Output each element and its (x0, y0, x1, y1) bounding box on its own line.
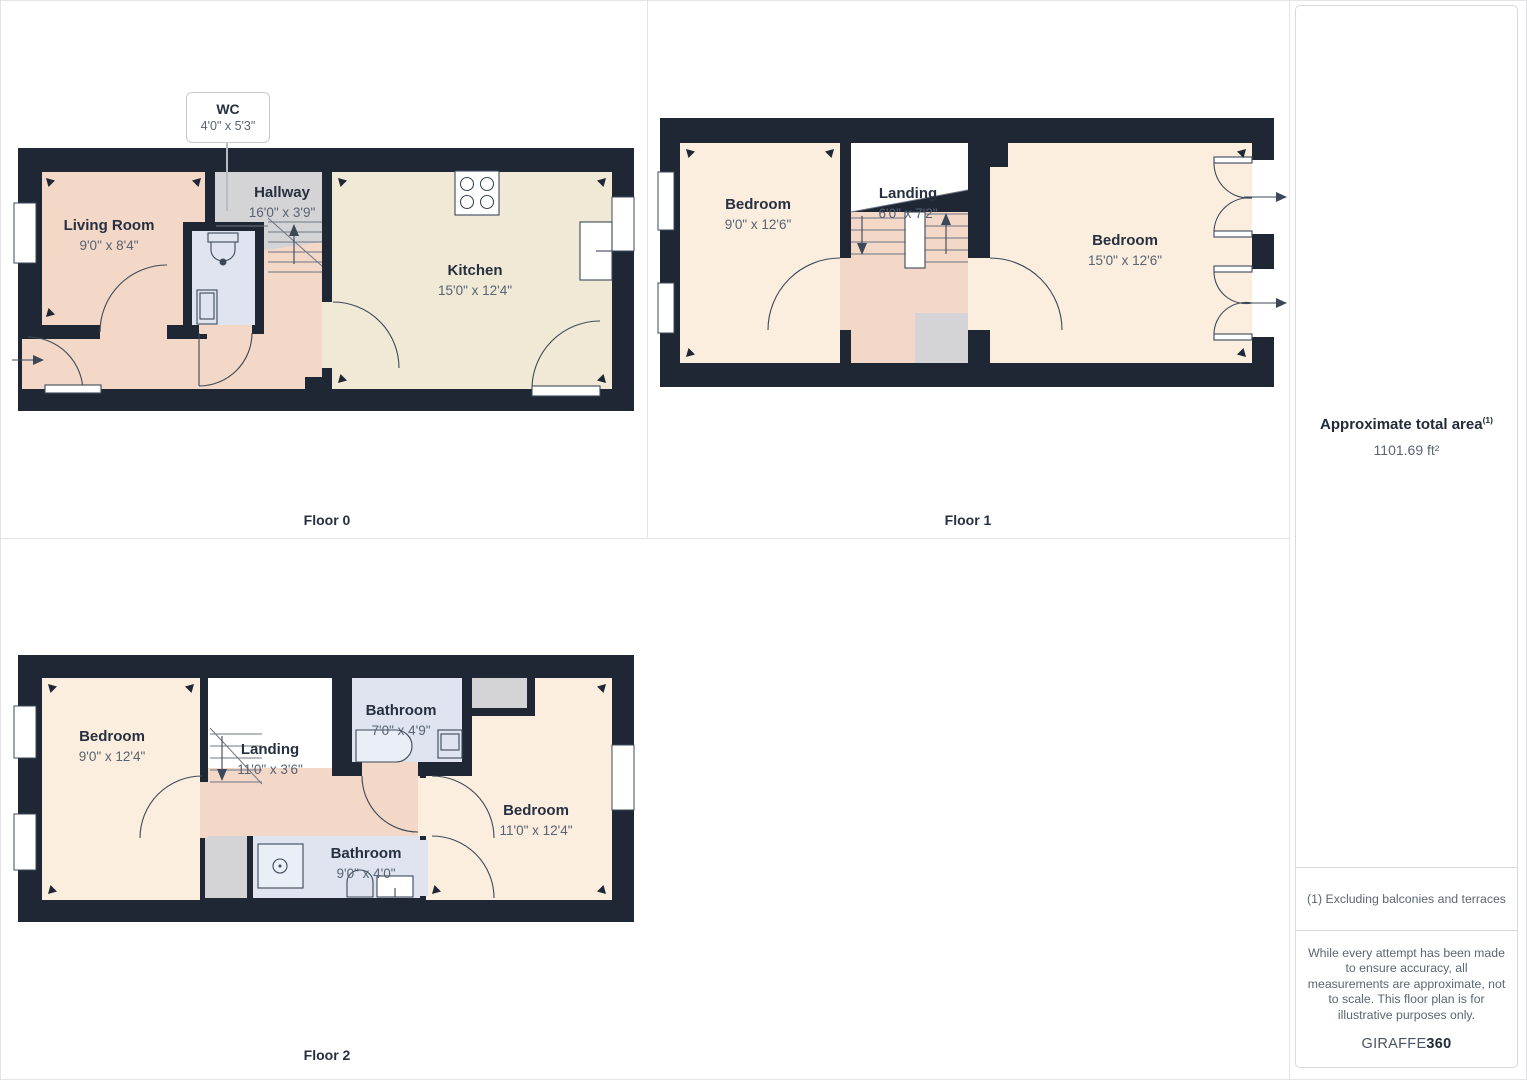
floor1-closet (915, 313, 968, 363)
room-dims: 4'0" x 5'3" (201, 118, 256, 134)
living-room-window (14, 203, 36, 263)
room-label-hallway: Hallway 16'0" x 3'9" (249, 183, 316, 223)
total-area-value: 1101.69 ft² (1374, 442, 1440, 458)
room-dims: 9'0" x 12'6" (725, 215, 792, 235)
stove-icon (455, 171, 499, 215)
room-dims: 15'0" x 12'4" (438, 281, 512, 301)
room-dims: 11'0" x 12'4" (499, 821, 572, 841)
floor-1-caption: Floor 1 (945, 512, 992, 528)
bedroom-left-window-1 (14, 706, 36, 758)
room-dims: 9'0" x 12'4" (79, 747, 146, 767)
floor-1-cell: Bedroom 9'0" x 12'6" Landing 6'0" x 7'2"… (648, 0, 1289, 538)
shower-icon (258, 844, 303, 888)
kitchen-window (612, 197, 634, 251)
footnote-reference: (1) (1483, 415, 1493, 425)
wc-callout: WC 4'0" x 5'3" (186, 92, 270, 143)
giraffe360-logo: GIRAFFE360 (1361, 1036, 1451, 1052)
room-dims: 7'0" x 4'9" (366, 721, 437, 741)
room-name: Bedroom (1088, 231, 1162, 251)
wc-callout-leader (226, 141, 228, 211)
floor-0-cell: WC 4'0" x 5'3" Living Room 9'0" x 8'4" H… (0, 0, 648, 538)
divider-vertical-right (1289, 0, 1290, 1080)
bedroom-left-window-2 (14, 814, 36, 870)
disclaimer-section: While every attempt has been made to ens… (1296, 931, 1517, 1067)
total-area-title-text: Approximate total area (1320, 416, 1483, 433)
total-area-title: Approximate total area(1) (1320, 415, 1493, 433)
room-name: Bedroom (499, 801, 572, 821)
room-label-bathroom-bottom: Bathroom 9'0" x 4'0" (331, 844, 402, 884)
room-name: Bedroom (725, 195, 792, 215)
room-label-living-room: Living Room 9'0" x 8'4" (64, 216, 155, 256)
floor0-wc (183, 222, 264, 334)
floor-0-plan (0, 0, 648, 538)
floorplan-page: WC 4'0" x 5'3" Living Room 9'0" x 8'4" H… (0, 0, 1527, 1080)
kitchen-sink-icon (580, 222, 612, 280)
room-dims: 9'0" x 4'0" (331, 864, 402, 884)
room-dims: 6'0" x 7'2" (878, 204, 937, 224)
room-label-landing: Landing 6'0" x 7'2" (878, 184, 937, 224)
room-dims: 15'0" x 12'6" (1088, 251, 1162, 271)
info-panel: Approximate total area(1) 1101.69 ft² (1… (1295, 5, 1518, 1068)
room-label-landing: Landing 11'0" x 3'6" (237, 740, 303, 780)
room-name: Landing (237, 740, 303, 760)
floor1-bedroom-left-floor (680, 143, 840, 363)
floor2-bedroom-left-floor (42, 678, 200, 900)
room-dims: 9'0" x 8'4" (64, 236, 155, 256)
room-name: Landing (878, 184, 937, 204)
floor2-storage (472, 678, 527, 708)
room-label-bathroom-top: Bathroom 7'0" x 4'9" (366, 701, 437, 741)
room-name: Bedroom (79, 727, 146, 747)
room-label-bedroom-right: Bedroom 11'0" x 12'4" (499, 801, 572, 841)
disclaimer-text: While every attempt has been made to ens… (1308, 946, 1506, 1024)
room-name: Hallway (249, 183, 316, 203)
room-dims: 11'0" x 3'6" (237, 760, 303, 780)
floor2-closet (205, 836, 247, 898)
total-area-section: Approximate total area(1) 1101.69 ft² (1296, 6, 1517, 868)
bedroom-left-window-2 (658, 283, 674, 333)
footnote: (1) Excluding balconies and terraces (1296, 868, 1517, 931)
room-label-kitchen: Kitchen 15'0" x 12'4" (438, 261, 512, 301)
room-label-bedroom-left: Bedroom 9'0" x 12'6" (725, 195, 792, 235)
room-name: Kitchen (438, 261, 512, 281)
room-name: WC (216, 101, 239, 118)
brand-bold: 360 (1426, 1036, 1451, 1052)
room-dims: 16'0" x 3'9" (249, 203, 316, 223)
room-name: Living Room (64, 216, 155, 236)
brand-regular: GIRAFFE (1361, 1036, 1426, 1052)
room-name: Bathroom (366, 701, 437, 721)
room-name: Bathroom (331, 844, 402, 864)
bedroom-left-window-1 (658, 172, 674, 230)
floor-2-cell: Bedroom 9'0" x 12'4" Landing 11'0" x 3'6… (0, 538, 648, 1080)
bedroom-right-window (612, 745, 634, 810)
floor-2-caption: Floor 2 (304, 1047, 351, 1063)
floor-1-plan (648, 0, 1289, 538)
floor-0-caption: Floor 0 (304, 512, 351, 528)
room-label-bedroom-left: Bedroom 9'0" x 12'4" (79, 727, 146, 767)
room-label-bedroom-right: Bedroom 15'0" x 12'6" (1088, 231, 1162, 271)
